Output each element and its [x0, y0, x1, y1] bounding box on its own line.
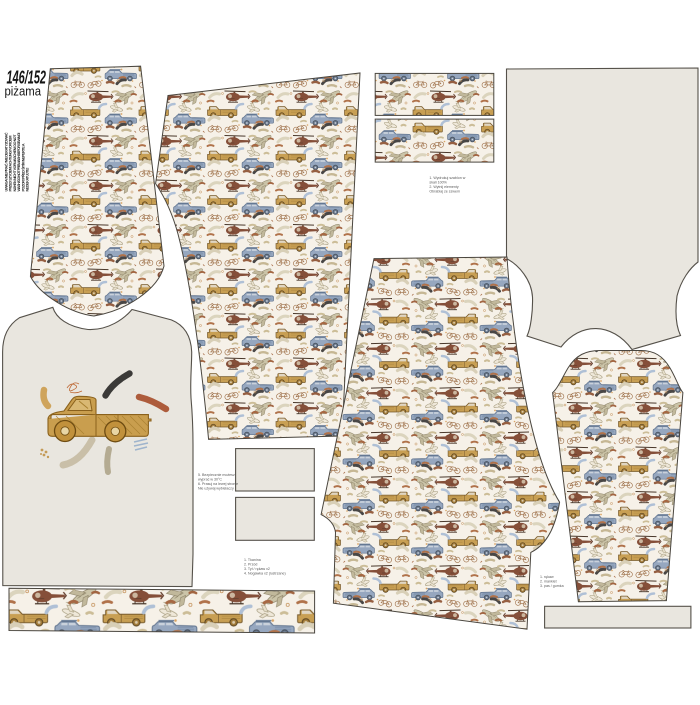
svg-text:2. Wytnij elementy: 2. Wytnij elementy: [429, 185, 459, 189]
svg-text:1. Tkanina: 1. Tkanina: [244, 558, 261, 562]
svg-text:2. Przód: 2. Przód: [244, 563, 257, 567]
svg-text:1. Wydrukuj szablon w: 1. Wydrukuj szablon w: [429, 176, 465, 180]
svg-text:1. rękaw: 1. rękaw: [540, 575, 554, 579]
svg-text:3. pas / gumka: 3. pas / gumka: [540, 584, 564, 588]
svg-text:piżama: piżama: [5, 85, 42, 99]
svg-text:5. Bezpiecznie możesz: 5. Bezpiecznie możesz: [198, 473, 235, 477]
svg-text:skali 100%: skali 100%: [429, 181, 447, 185]
svg-text:Obrabiaj ze szwem: Obrabiaj ze szwem: [429, 190, 460, 194]
svg-text:Nie używaj wybielaczy: Nie używaj wybielaczy: [198, 487, 234, 491]
svg-text:3. Tył / rękaw x2: 3. Tył / rękaw x2: [244, 567, 270, 571]
svg-text:NEDEKATUJTE!: NEDEKATUJTE!: [26, 168, 30, 192]
svg-text:4. Nogawka x2 (lustrzane): 4. Nogawka x2 (lustrzane): [244, 572, 286, 576]
svg-text:2. mankiet: 2. mankiet: [540, 580, 557, 584]
svg-text:6. Prasuj na lewej stronie: 6. Prasuj na lewej stronie: [198, 482, 238, 486]
svg-text:wyprać w 30°C: wyprać w 30°C: [198, 478, 222, 482]
